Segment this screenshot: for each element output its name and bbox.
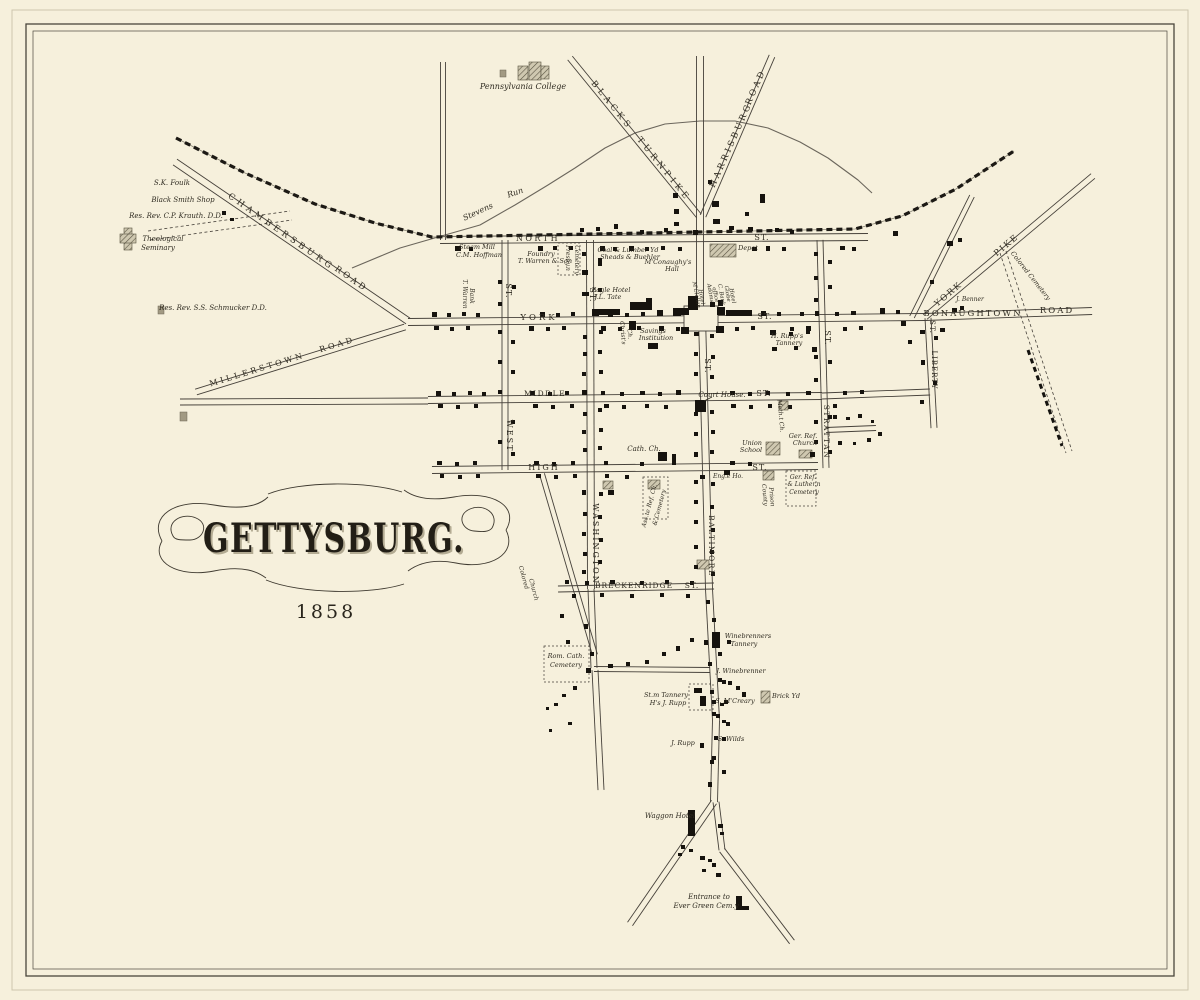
- place-label: Rom. Cath.: [547, 652, 585, 660]
- place-label: Black Smith Shop: [150, 196, 215, 204]
- building: [712, 712, 716, 716]
- building: [437, 461, 442, 465]
- building: [608, 664, 613, 668]
- building: [717, 307, 725, 315]
- building: [930, 280, 934, 284]
- building: [582, 490, 586, 495]
- public-building-hatched: [763, 471, 774, 480]
- building: [585, 581, 589, 585]
- street-label: MIDDLE: [524, 389, 566, 398]
- map-title: GETTYSBURG.: [203, 515, 465, 562]
- building: [901, 321, 906, 326]
- building: [440, 474, 444, 478]
- building: [674, 209, 679, 214]
- building: [760, 194, 765, 203]
- public-building-hatched: [529, 62, 541, 80]
- building: [590, 652, 594, 656]
- street-label: ST.: [823, 330, 832, 345]
- building: [582, 532, 586, 536]
- building: [748, 462, 752, 466]
- public-building-hatched: [541, 66, 549, 79]
- building: [730, 461, 735, 465]
- building: [814, 355, 818, 359]
- paper: [0, 0, 1200, 1000]
- building: [736, 686, 740, 690]
- building: [452, 392, 456, 396]
- building: [712, 632, 720, 648]
- building: [742, 906, 749, 910]
- building: [511, 340, 515, 344]
- place-label: Seminary: [141, 244, 176, 252]
- building: [710, 690, 714, 694]
- building: [620, 392, 624, 396]
- building: [835, 312, 839, 316]
- building: [711, 430, 715, 434]
- building: [536, 474, 541, 478]
- building: [660, 593, 664, 597]
- street-label: ROAD: [1040, 306, 1074, 316]
- building: [694, 480, 698, 484]
- place-label: Cemetery: [573, 245, 580, 275]
- map-year: 1858: [296, 601, 356, 623]
- building: [786, 392, 790, 396]
- building: [712, 618, 716, 622]
- building: [560, 614, 564, 618]
- building: [921, 360, 925, 365]
- building: [840, 246, 845, 250]
- place-label: J. Rupp: [669, 739, 695, 747]
- building: [661, 246, 665, 250]
- place-label: Church: [793, 439, 817, 447]
- building: [498, 330, 502, 334]
- building: [695, 400, 706, 412]
- building: [958, 238, 962, 242]
- street-label: BALTIMORE: [707, 515, 716, 577]
- building: [604, 461, 608, 465]
- building: [562, 326, 566, 330]
- building: [546, 707, 549, 710]
- street-label: ST.: [752, 463, 767, 472]
- place-label: T. Warren: [461, 279, 468, 308]
- building: [626, 662, 630, 666]
- building: [630, 302, 646, 310]
- building: [498, 280, 502, 284]
- building: [814, 420, 818, 424]
- building: [676, 327, 680, 331]
- building: [476, 474, 480, 478]
- building: [598, 408, 602, 412]
- building: [828, 285, 832, 289]
- building: [462, 312, 466, 316]
- building: [748, 227, 753, 231]
- building: [694, 432, 698, 436]
- building: [722, 680, 726, 684]
- building: [686, 594, 690, 598]
- place-label: T. Warren & Son: [518, 257, 572, 265]
- building: [710, 760, 714, 764]
- place-label: St.m Tannery: [644, 691, 688, 699]
- building: [700, 856, 705, 860]
- building: [815, 311, 819, 316]
- building: [710, 505, 714, 509]
- building: [498, 302, 502, 306]
- building: [729, 226, 734, 230]
- building: [476, 313, 480, 317]
- place-label: & Luther.n: [788, 481, 821, 488]
- building: [605, 474, 609, 478]
- building: [812, 347, 817, 352]
- place-label: Theological: [142, 235, 183, 243]
- building: [458, 475, 462, 479]
- building: [450, 327, 454, 331]
- building: [473, 461, 477, 465]
- building: [694, 520, 698, 524]
- place-label: S. M'Creary: [715, 697, 755, 705]
- building: [549, 729, 552, 732]
- building: [566, 640, 570, 644]
- building: [640, 391, 645, 395]
- building: [735, 327, 739, 331]
- building: [625, 475, 629, 479]
- building: [790, 230, 794, 234]
- building: [710, 375, 714, 379]
- building: [871, 420, 874, 423]
- building: [676, 646, 680, 651]
- building: [704, 640, 708, 645]
- building: [583, 552, 587, 556]
- building: [711, 482, 715, 486]
- building: [810, 452, 815, 457]
- place-label: Eng.e Ho.: [712, 473, 743, 480]
- building: [598, 350, 602, 354]
- building: [455, 462, 459, 466]
- building: [658, 392, 662, 396]
- building: [648, 343, 658, 349]
- building: [731, 404, 736, 408]
- building: [843, 327, 847, 331]
- building: [694, 332, 699, 336]
- street-label: ST.: [703, 358, 712, 373]
- building: [645, 660, 649, 664]
- building: [768, 404, 772, 408]
- building: [565, 580, 569, 584]
- gettysburg-1858-map-sheet: GETTYSBURG. 1858 NORTHST.YORKST.MIDDLECo…: [0, 0, 1200, 1000]
- building: [674, 222, 679, 226]
- place-label: Institution: [638, 334, 673, 342]
- building: [718, 678, 722, 682]
- street-label: STRATTAN: [822, 405, 831, 460]
- building: [710, 450, 714, 454]
- building: [230, 218, 234, 221]
- building: [599, 330, 603, 334]
- building: [625, 313, 629, 317]
- place-label: Pennsylvania College: [479, 82, 566, 91]
- public-building-hatched: [518, 66, 528, 80]
- building: [908, 340, 912, 344]
- building: [447, 313, 451, 317]
- building: [533, 404, 538, 408]
- building: [706, 600, 710, 604]
- place-label: J.L. Tate: [593, 293, 622, 301]
- building: [700, 743, 704, 748]
- building: [598, 446, 602, 450]
- place-label: Entrance to: [687, 893, 730, 901]
- street-label: ST.: [685, 581, 699, 590]
- gettysburg-town-plan: NORTHST.YORKST.MIDDLECourt House.ST.HIGH…: [0, 0, 1200, 1000]
- place-label: Res. Rev. C.P. Krauth. D.D.: [128, 212, 223, 220]
- building: [583, 512, 587, 516]
- building: [843, 391, 847, 395]
- building: [694, 688, 702, 693]
- building: [790, 327, 794, 331]
- building: [600, 593, 604, 597]
- public-building-hatched: [761, 691, 770, 703]
- building: [720, 832, 724, 835]
- street-label: ST.: [754, 233, 769, 242]
- building: [896, 310, 900, 314]
- building: [710, 410, 714, 414]
- building: [893, 231, 898, 236]
- street-label: BRECKENRIDGE: [595, 581, 673, 590]
- building: [712, 201, 719, 207]
- building: [456, 405, 460, 409]
- building: [833, 415, 837, 419]
- building: [562, 694, 566, 697]
- building: [833, 404, 837, 408]
- place-label: Bank: [468, 287, 475, 304]
- building: [694, 452, 698, 457]
- street-label: ST.: [504, 283, 513, 298]
- building: [546, 327, 550, 331]
- building: [920, 330, 925, 334]
- place-label: S. Wilds: [718, 735, 745, 743]
- place-label: Brick Yd: [771, 692, 800, 700]
- building: [708, 782, 712, 787]
- building: [573, 686, 577, 690]
- building: [434, 326, 439, 330]
- building: [690, 638, 694, 642]
- building: [814, 298, 818, 302]
- building: [788, 405, 792, 409]
- building: [673, 308, 681, 316]
- building: [694, 565, 698, 569]
- building: [694, 545, 698, 549]
- street-label: WASHINGTON: [591, 503, 600, 585]
- street-label: ST.: [928, 320, 936, 334]
- public-building-hatched: [603, 481, 613, 489]
- building: [500, 70, 506, 77]
- place-label: Steam Mill: [459, 243, 495, 251]
- building: [583, 448, 587, 452]
- building: [814, 276, 818, 280]
- building: [432, 312, 437, 317]
- building: [718, 652, 722, 656]
- building: [582, 270, 586, 275]
- building: [722, 770, 726, 774]
- building: [712, 756, 716, 760]
- building: [436, 391, 441, 396]
- place-label: School: [740, 446, 762, 454]
- building: [828, 260, 832, 264]
- place-label: Presby.n: [564, 244, 571, 271]
- building: [713, 219, 720, 224]
- public-building-hatched: [766, 442, 780, 455]
- building: [599, 370, 603, 374]
- place-label: J. Winebrenner: [714, 667, 766, 675]
- building: [604, 404, 609, 408]
- public-building-hatched: [710, 244, 736, 257]
- place-label: Tannery: [776, 339, 803, 347]
- place-label: C.M. Hoffman: [456, 251, 502, 259]
- building: [712, 863, 716, 867]
- building: [601, 391, 605, 395]
- building: [694, 500, 698, 504]
- building: [672, 454, 676, 465]
- building: [664, 405, 668, 409]
- street-label: ST.: [757, 312, 772, 321]
- place-label: Ch.: [626, 328, 634, 339]
- building: [657, 310, 663, 316]
- building: [583, 412, 587, 416]
- building: [608, 490, 614, 495]
- building: [693, 230, 698, 235]
- building: [947, 241, 953, 246]
- building: [551, 405, 555, 409]
- building: [694, 352, 698, 356]
- building: [680, 308, 689, 315]
- building: [498, 360, 502, 364]
- place-label: Cath. Ch.: [627, 445, 660, 453]
- building: [582, 292, 586, 296]
- building: [498, 440, 502, 444]
- place-label: S.K. Foulk: [154, 179, 190, 187]
- building: [867, 438, 871, 442]
- building: [860, 390, 864, 394]
- building: [806, 330, 810, 334]
- building: [641, 312, 645, 316]
- building: [596, 227, 600, 231]
- place-label: Hall: [664, 265, 679, 273]
- place-label: Waggon Hotel: [645, 812, 695, 820]
- building: [474, 404, 478, 408]
- building: [582, 252, 586, 256]
- building: [775, 228, 779, 232]
- building: [583, 335, 587, 339]
- building: [920, 400, 924, 404]
- building: [710, 334, 714, 338]
- building: [573, 474, 577, 478]
- building: [722, 720, 726, 723]
- building: [582, 570, 586, 574]
- building: [482, 392, 486, 396]
- building: [554, 475, 558, 479]
- street-label: YORK: [519, 313, 557, 323]
- building: [554, 703, 558, 706]
- building: [571, 312, 575, 316]
- building: [749, 405, 753, 409]
- building: [630, 594, 634, 598]
- building: [662, 652, 666, 656]
- building: [853, 442, 856, 445]
- building: [716, 873, 721, 877]
- building: [806, 391, 811, 395]
- building: [716, 714, 720, 718]
- building: [586, 668, 591, 673]
- building: [678, 247, 682, 251]
- building: [572, 594, 576, 598]
- building: [571, 461, 575, 465]
- building: [828, 360, 832, 364]
- building: [658, 452, 667, 461]
- building: [880, 308, 885, 314]
- street-label: HIGH: [528, 463, 560, 472]
- building: [646, 298, 652, 310]
- place-label: Tannery: [731, 640, 758, 648]
- building: [681, 327, 689, 334]
- building: [498, 390, 502, 394]
- building: [838, 441, 842, 445]
- building: [772, 347, 777, 351]
- building: [570, 404, 574, 408]
- building: [511, 452, 515, 456]
- place-label: Cemetery: [550, 661, 582, 669]
- place-label: Cemetery: [789, 489, 819, 496]
- building: [580, 228, 584, 232]
- building: [800, 312, 804, 316]
- building: [858, 414, 862, 418]
- building: [694, 412, 698, 416]
- building: [529, 326, 534, 331]
- street-label: NORTH: [516, 234, 560, 243]
- building: [694, 372, 698, 376]
- building: [466, 326, 470, 330]
- building: [622, 405, 626, 409]
- building: [852, 247, 856, 251]
- building: [700, 696, 706, 706]
- street-label: BONAUGHTOWN: [923, 309, 1022, 319]
- building: [934, 336, 938, 340]
- building: [814, 252, 818, 256]
- building: [568, 722, 572, 725]
- place-label: Depot: [737, 244, 758, 252]
- building: [681, 845, 685, 849]
- place-label: Res. Rev. S.S. Schmucker D.D.: [158, 304, 267, 312]
- building: [777, 312, 781, 316]
- place-label: Ger. Ref.: [790, 474, 816, 481]
- building: [747, 312, 751, 316]
- building: [878, 432, 882, 436]
- building: [599, 428, 603, 432]
- building: [468, 391, 472, 395]
- building: [726, 722, 730, 726]
- building: [733, 311, 738, 316]
- building: [582, 372, 586, 376]
- building: [718, 824, 723, 828]
- building: [702, 869, 706, 872]
- public-building-hatched: [120, 234, 136, 243]
- building: [640, 462, 644, 466]
- building: [728, 681, 732, 685]
- building: [700, 475, 705, 479]
- building: [814, 378, 818, 382]
- building: [708, 859, 712, 862]
- building: [645, 404, 649, 408]
- building: [582, 390, 587, 395]
- building: [751, 326, 755, 330]
- building: [678, 853, 682, 856]
- building: [676, 390, 681, 395]
- building: [716, 326, 724, 333]
